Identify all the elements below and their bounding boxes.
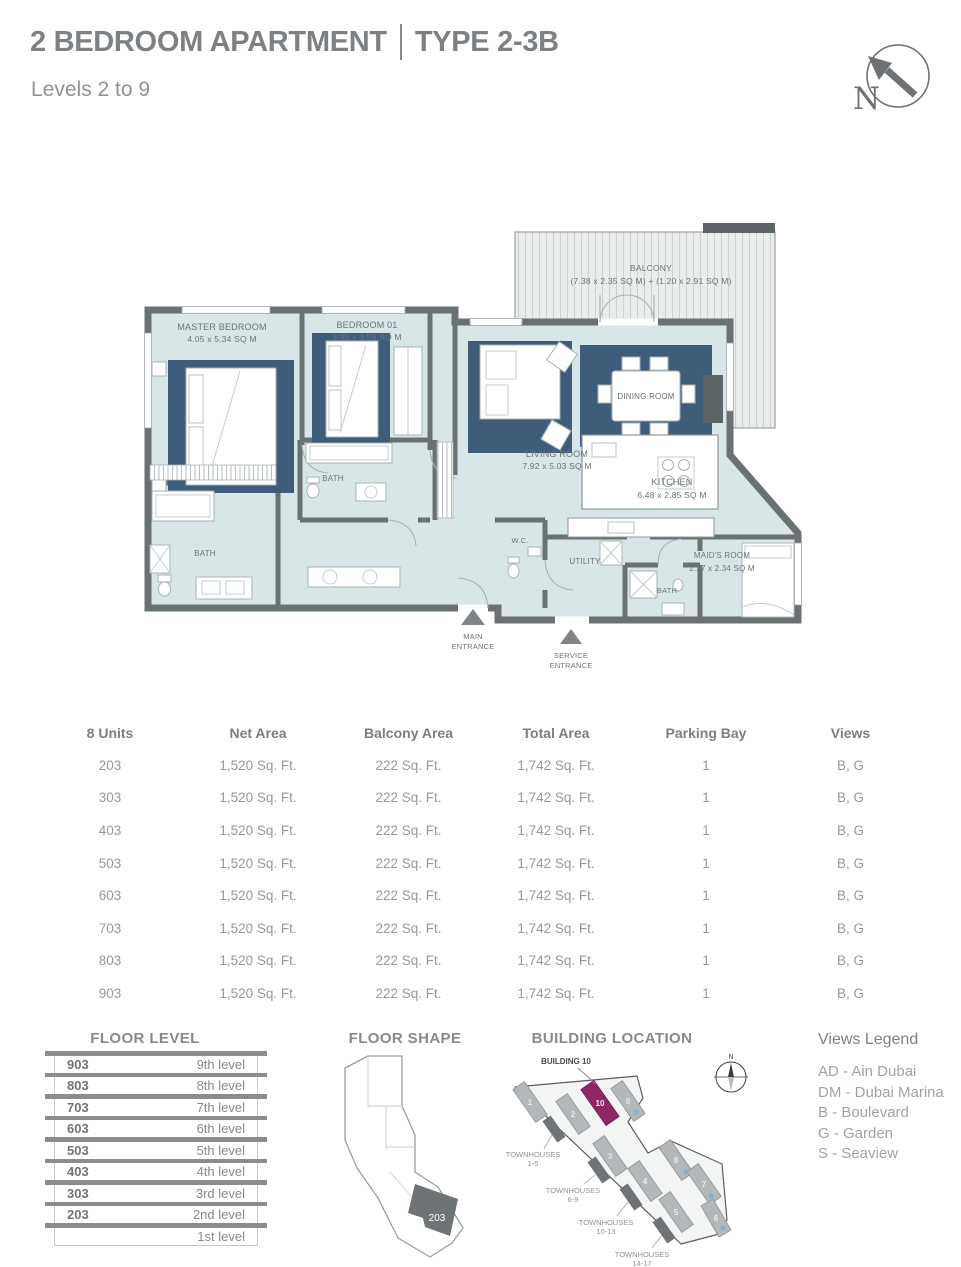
cell-unit: 803 [40, 945, 180, 978]
table-row: 4031,520 Sq. Ft.222 Sq. Ft.1,742 Sq. Ft.… [40, 814, 920, 847]
cell-parking: 1 [631, 847, 781, 880]
floor-shape-title: FLOOR SHAPE [330, 1030, 480, 1047]
service-entrance-label-1: SERVICE [554, 651, 588, 660]
townhouses-label: TOWNHOUSES [615, 1250, 669, 1259]
living-sofa [468, 341, 577, 453]
cell-views: B, G [781, 814, 920, 847]
cell-net: 1,520 Sq. Ft. [180, 814, 336, 847]
hall-closet [437, 442, 453, 518]
page-title: 2 BEDROOM APARTMENT TYPE 2-3B [30, 24, 559, 60]
cell-views: B, G [781, 847, 920, 880]
level-unit: 803 [67, 1078, 97, 1093]
legend-item: AD - Ain Dubai [818, 1062, 944, 1083]
units-table: 8 Units Net Area Balcony Area Total Area… [40, 716, 920, 1010]
views-legend: Views Legend AD - Ain Dubai DM - Dubai M… [818, 1031, 944, 1165]
cell-unit: 203 [40, 749, 180, 782]
maids-room-dims: 2.27 x 2.34 SQ M [689, 564, 755, 573]
kitchen-counters [568, 435, 718, 537]
level-unit: 203 [67, 1207, 97, 1222]
hall-vanity [308, 567, 400, 587]
brochure-page: 2 BEDROOM APARTMENT TYPE 2-3B Levels 2 t… [0, 0, 961, 1267]
cell-unit: 503 [40, 847, 180, 880]
floor-plan: BALCONY (7.38 x 2.35 SQ M) + (1.20 x 2.9… [130, 215, 820, 675]
building-number: 2 [571, 1110, 576, 1119]
floor-level-row: 4034th level [54, 1163, 258, 1180]
utility-shaft [600, 541, 622, 565]
cell-balcony: 222 Sq. Ft. [336, 749, 481, 782]
townhouses-label: TOWNHOUSES [579, 1218, 633, 1227]
cell-balcony: 222 Sq. Ft. [336, 847, 481, 880]
cell-parking: 1 [631, 977, 781, 1010]
units-table-header-row: 8 Units Net Area Balcony Area Total Area… [40, 716, 920, 749]
bedroom01-wardrobe [394, 347, 422, 435]
cell-views: B, G [781, 912, 920, 945]
level-name: 1st level [197, 1229, 245, 1244]
page-title-right: TYPE 2-3B [415, 26, 559, 59]
table-row: 9031,520 Sq. Ft.222 Sq. Ft.1,742 Sq. Ft.… [40, 977, 920, 1010]
building-number: 4 [643, 1177, 648, 1186]
level-unit: 603 [67, 1121, 97, 1136]
townhouses-label: TOWNHOUSES [506, 1150, 560, 1159]
level-name: 7th level [197, 1100, 245, 1115]
cell-net: 1,520 Sq. Ft. [180, 782, 336, 815]
building-number: 8 [674, 1156, 679, 1165]
cell-net: 1,520 Sq. Ft. [180, 847, 336, 880]
townhouses-label: TOWNHOUSES [546, 1186, 600, 1195]
legend-item: DM - Dubai Marina [818, 1083, 944, 1104]
legend-item: G - Garden [818, 1124, 944, 1145]
cell-total: 1,742 Sq. Ft. [481, 847, 631, 880]
cell-parking: 1 [631, 814, 781, 847]
floor-level-title: FLOOR LEVEL [45, 1030, 245, 1047]
cell-views: B, G [781, 782, 920, 815]
level-name: 6th level [197, 1121, 245, 1136]
cell-views: B, G [781, 977, 920, 1010]
main-entrance-label-2: ENTRANCE [452, 642, 495, 651]
townhouses-range: 1-5 [528, 1159, 539, 1168]
townhouses-range: 14-17 [632, 1259, 651, 1267]
townhouses-range: 10-13 [596, 1227, 615, 1236]
floor-level-row: 7037th level [54, 1099, 258, 1116]
level-name: 3rd level [196, 1186, 245, 1201]
cell-balcony: 222 Sq. Ft. [336, 977, 481, 1010]
building-number: 7 [702, 1180, 707, 1189]
level-name: 8th level [197, 1078, 245, 1093]
map-compass-icon: N [714, 1054, 748, 1092]
col-header-net-area: Net Area [180, 716, 336, 749]
cell-parking: 1 [631, 879, 781, 912]
bedroom01-bed [312, 333, 390, 445]
bedroom01-dims: 3.95 x 3.59 SQ M [332, 332, 401, 342]
table-row: 6031,520 Sq. Ft.222 Sq. Ft.1,742 Sq. Ft.… [40, 879, 920, 912]
level-unit: 903 [67, 1057, 97, 1072]
cell-total: 1,742 Sq. Ft. [481, 782, 631, 815]
bedroom01-label: BEDROOM 01 [336, 320, 397, 330]
building-location-map: 1 2 10 9 3 4 5 8 7 6 BUILDING 10 TOWNHOU… [500, 1050, 785, 1267]
cell-total: 1,742 Sq. Ft. [481, 945, 631, 978]
table-row: 8031,520 Sq. Ft.222 Sq. Ft.1,742 Sq. Ft.… [40, 945, 920, 978]
cell-parking: 1 [631, 782, 781, 815]
balcony-dims: (7.38 x 2.35 SQ M) + (1.20 x 2.91 SQ M) [570, 276, 731, 286]
master-bedroom-label: MASTER BEDROOM [177, 322, 266, 332]
wc-label: W.C. [511, 536, 528, 545]
floor-level-row: 6036th level [54, 1120, 258, 1137]
floor-level-table: 9039th level 8038th level 7037th level 6… [45, 1051, 267, 1246]
townhouses-range: 6-9 [568, 1195, 579, 1204]
building-10-label: BUILDING 10 [541, 1057, 591, 1066]
building-number: 3 [608, 1152, 613, 1161]
main-entrance-label-1: MAIN [463, 632, 483, 641]
building-number: 5 [674, 1208, 679, 1217]
living-room-label: LIVING ROOM [526, 449, 588, 459]
cell-unit: 303 [40, 782, 180, 815]
cell-total: 1,742 Sq. Ft. [481, 879, 631, 912]
level-name: 9th level [197, 1057, 245, 1072]
level-unit: 403 [67, 1164, 97, 1179]
cell-net: 1,520 Sq. Ft. [180, 977, 336, 1010]
legend-item: B - Boulevard [818, 1103, 944, 1124]
living-room-dims: 7.92 x 5.03 SQ M [522, 461, 591, 471]
cell-unit: 903 [40, 977, 180, 1010]
building-number: 1 [528, 1098, 533, 1107]
col-header-views: Views [781, 716, 920, 749]
floor-shape-unit-label: 203 [429, 1213, 446, 1224]
dining-room-label: DINING ROOM [617, 392, 674, 401]
cell-net: 1,520 Sq. Ft. [180, 912, 336, 945]
cell-total: 1,742 Sq. Ft. [481, 814, 631, 847]
utility-label: UTILITY [569, 557, 601, 566]
cell-balcony: 222 Sq. Ft. [336, 879, 481, 912]
cell-net: 1,520 Sq. Ft. [180, 749, 336, 782]
building-number: 10 [596, 1099, 605, 1108]
cell-total: 1,742 Sq. Ft. [481, 977, 631, 1010]
table-row: 2031,520 Sq. Ft.222 Sq. Ft.1,742 Sq. Ft.… [40, 749, 920, 782]
structural-column [703, 375, 723, 423]
cell-unit: 703 [40, 912, 180, 945]
building-location-title: BUILDING LOCATION [500, 1030, 724, 1047]
kitchen-label: KITCHEN [652, 477, 693, 487]
balcony-label: BALCONY [630, 263, 672, 273]
maids-room-label: MAID'S ROOM [694, 551, 750, 560]
table-row: 7031,520 Sq. Ft.222 Sq. Ft.1,742 Sq. Ft.… [40, 912, 920, 945]
cell-balcony: 222 Sq. Ft. [336, 814, 481, 847]
col-header-units: 8 Units [40, 716, 180, 749]
level-name: 4th level [197, 1164, 245, 1179]
master-wardrobe [150, 465, 276, 480]
table-row: 5031,520 Sq. Ft.222 Sq. Ft.1,742 Sq. Ft.… [40, 847, 920, 880]
map-compass-n: N [728, 1054, 733, 1061]
service-entrance-label-2: ENTRANCE [550, 661, 593, 670]
level-name: 2nd level [193, 1207, 245, 1222]
bedroom01-bath-label: BATH [322, 474, 344, 483]
level-unit: 503 [67, 1143, 97, 1158]
legend-item: S - Seaview [818, 1144, 944, 1165]
service-entrance-marker [560, 629, 582, 644]
cell-total: 1,742 Sq. Ft. [481, 749, 631, 782]
floor-level-row: 5035th level [54, 1142, 258, 1159]
col-header-parking-bay: Parking Bay [631, 716, 781, 749]
floor-level-row: 8038th level [54, 1077, 258, 1094]
floor-level-row: 1st level [54, 1228, 258, 1246]
cell-net: 1,520 Sq. Ft. [180, 879, 336, 912]
table-row: 3031,520 Sq. Ft.222 Sq. Ft.1,742 Sq. Ft.… [40, 782, 920, 815]
cell-views: B, G [781, 749, 920, 782]
kitchen-dims: 6.48 x 2.85 SQ M [637, 490, 706, 500]
level-name: 5th level [197, 1143, 245, 1158]
cell-balcony: 222 Sq. Ft. [336, 782, 481, 815]
floor-level-row: 2032nd level [54, 1206, 258, 1223]
cell-parking: 1 [631, 945, 781, 978]
cell-balcony: 222 Sq. Ft. [336, 912, 481, 945]
page-title-left: 2 BEDROOM APARTMENT [30, 26, 387, 59]
level-unit: 303 [67, 1186, 97, 1201]
col-header-total-area: Total Area [481, 716, 631, 749]
compass-n-label: N [853, 81, 880, 117]
page-subtitle: Levels 2 to 9 [31, 78, 150, 102]
cell-parking: 1 [631, 912, 781, 945]
floor-shape-diagram: 203 [330, 1052, 480, 1265]
cell-balcony: 222 Sq. Ft. [336, 945, 481, 978]
cell-views: B, G [781, 945, 920, 978]
master-bedroom-dims: 4.05 x 5.34 SQ M [187, 334, 256, 344]
level-unit: 703 [67, 1100, 97, 1115]
building-number: 6 [714, 1214, 719, 1223]
cell-total: 1,742 Sq. Ft. [481, 912, 631, 945]
maid-bath-label: BATH [657, 586, 677, 595]
building-number: 9 [626, 1097, 631, 1106]
north-compass-icon: N [835, 33, 945, 129]
title-divider [400, 24, 402, 60]
views-legend-title: Views Legend [818, 1031, 944, 1049]
floor-level-row: 9039th level [54, 1056, 258, 1073]
cell-unit: 403 [40, 814, 180, 847]
master-bath-label: BATH [194, 549, 216, 558]
floor-level-row: 3033rd level [54, 1185, 258, 1202]
col-header-balcony-area: Balcony Area [336, 716, 481, 749]
cell-net: 1,520 Sq. Ft. [180, 945, 336, 978]
cell-unit: 603 [40, 879, 180, 912]
cell-parking: 1 [631, 749, 781, 782]
cell-views: B, G [781, 879, 920, 912]
